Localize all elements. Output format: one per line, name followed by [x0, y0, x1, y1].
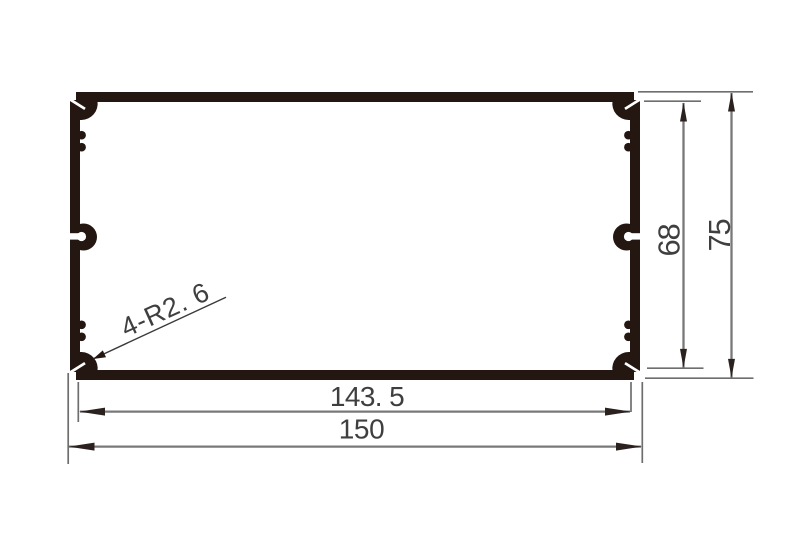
svg-text:4-R2. 6: 4-R2. 6	[116, 277, 214, 343]
svg-text:68: 68	[652, 224, 687, 256]
svg-text:143. 5: 143. 5	[330, 381, 404, 412]
svg-text:75: 75	[702, 219, 737, 251]
svg-text:150: 150	[339, 413, 385, 444]
